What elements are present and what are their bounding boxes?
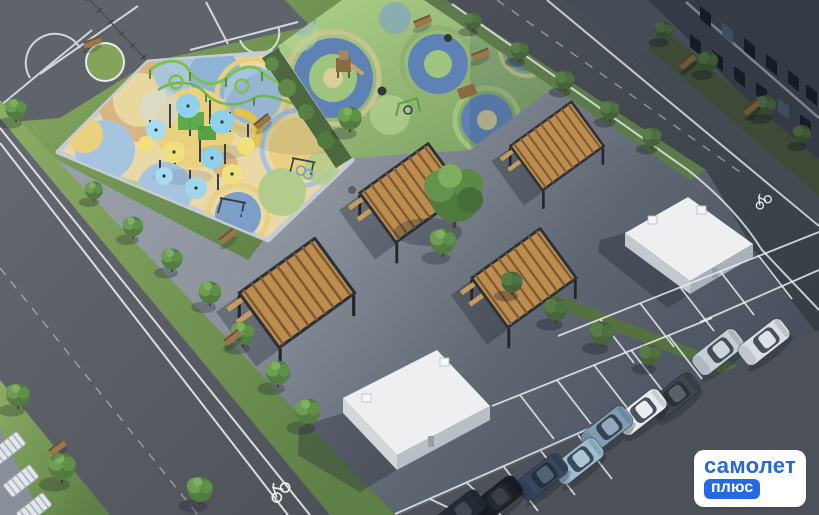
samolet-plus-watermark: самолет плюс (694, 450, 806, 507)
surface-circle (378, 87, 387, 96)
surface-circle (379, 2, 411, 34)
scene-svg (0, 0, 819, 515)
surface-circle (370, 95, 410, 135)
surface-circle (444, 34, 452, 42)
watermark-brand-text: самолет (704, 454, 796, 477)
watermark-plus-badge: плюс (704, 479, 760, 499)
drain-cover (348, 186, 356, 194)
courtyard-render: самолет плюс (0, 0, 819, 515)
surface-circle (424, 50, 452, 78)
